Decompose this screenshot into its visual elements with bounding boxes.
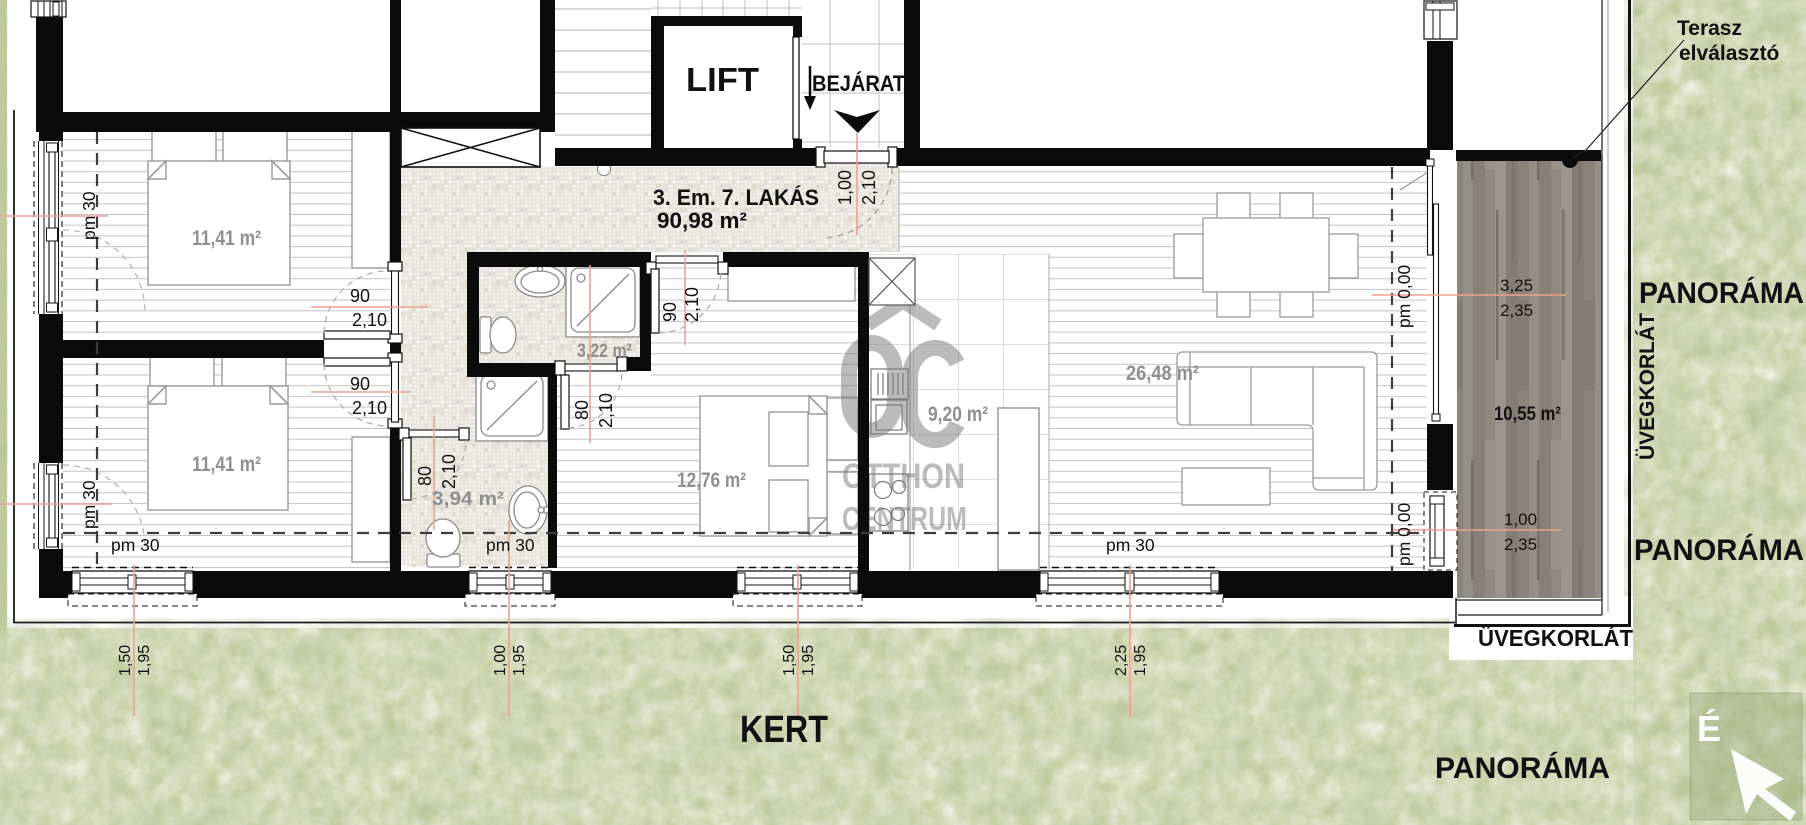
svg-text:2,25: 2,25 (1113, 645, 1130, 676)
svg-text:11,41 m²: 11,41 m² (192, 227, 261, 250)
svg-text:2,10: 2,10 (352, 398, 387, 418)
svg-text:10,55 m²: 10,55 m² (1494, 404, 1561, 425)
svg-text:PANORÁMA: PANORÁMA (1639, 276, 1804, 310)
svg-text:pm 0,00: pm 0,00 (1394, 265, 1414, 328)
svg-text:2,35: 2,35 (1504, 535, 1537, 554)
svg-text:2,35: 2,35 (1500, 301, 1533, 320)
svg-text:3,25: 3,25 (1500, 276, 1533, 295)
svg-text:É: É (1697, 708, 1721, 749)
svg-text:pm 0,00: pm 0,00 (1394, 503, 1414, 566)
svg-text:ÜVEGKORLÁT: ÜVEGKORLÁT (1478, 624, 1633, 651)
svg-text:pm 30: pm 30 (111, 535, 160, 555)
svg-text:90: 90 (350, 374, 370, 394)
svg-text:90,98 m²: 90,98 m² (657, 208, 747, 233)
svg-text:11,41 m²: 11,41 m² (192, 453, 261, 476)
svg-text:2,10: 2,10 (596, 393, 616, 428)
svg-text:80: 80 (572, 400, 592, 420)
svg-text:pm 30: pm 30 (79, 480, 99, 529)
svg-text:1,95: 1,95 (136, 645, 153, 676)
svg-text:pm 30: pm 30 (1106, 535, 1155, 555)
svg-text:1,00: 1,00 (835, 170, 855, 205)
svg-text:1,50: 1,50 (117, 645, 134, 676)
svg-text:1,00: 1,00 (492, 645, 509, 676)
svg-text:Terasz: Terasz (1677, 17, 1742, 40)
svg-text:LIFT: LIFT (686, 61, 759, 98)
svg-text:1,00: 1,00 (1504, 510, 1537, 529)
svg-text:80: 80 (415, 466, 435, 486)
svg-text:2,10: 2,10 (859, 170, 879, 205)
svg-text:PANORÁMA: PANORÁMA (1435, 751, 1610, 785)
svg-text:26,48 m²: 26,48 m² (1126, 362, 1199, 385)
svg-text:2,10: 2,10 (682, 287, 702, 322)
svg-text:1,95: 1,95 (1132, 645, 1149, 676)
svg-text:ÜVEGKORLÁT: ÜVEGKORLÁT (1636, 313, 1659, 460)
svg-text:PANORÁMA: PANORÁMA (1634, 533, 1804, 567)
svg-text:3. Em. 7. LAKÁS: 3. Em. 7. LAKÁS (653, 185, 819, 210)
svg-text:90: 90 (660, 302, 680, 322)
svg-text:1,50: 1,50 (781, 645, 798, 676)
svg-text:2,10: 2,10 (439, 454, 459, 489)
svg-text:pm 30: pm 30 (486, 535, 535, 555)
svg-text:KERT: KERT (740, 709, 828, 751)
svg-text:3,22 m²: 3,22 m² (577, 341, 632, 362)
svg-text:2,10: 2,10 (352, 310, 387, 330)
svg-text:3,94 m²: 3,94 m² (432, 489, 504, 510)
svg-text:pm 30: pm 30 (79, 191, 99, 240)
svg-text:9,20 m²: 9,20 m² (928, 403, 988, 426)
svg-text:1,95: 1,95 (800, 645, 817, 676)
svg-text:elválasztó: elválasztó (1679, 42, 1779, 65)
svg-text:12,76 m²: 12,76 m² (677, 469, 746, 492)
svg-text:BEJÁRAT: BEJÁRAT (812, 71, 906, 96)
svg-text:90: 90 (350, 286, 370, 306)
svg-text:1,95: 1,95 (511, 645, 528, 676)
